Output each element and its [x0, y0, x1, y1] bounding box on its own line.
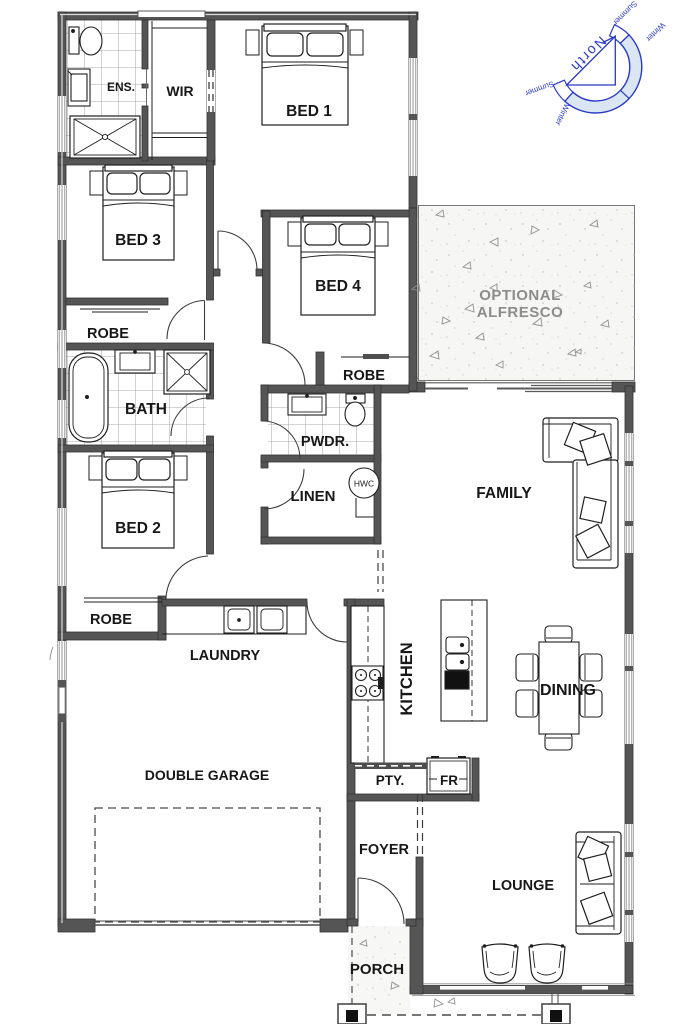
svg-text:BED 2: BED 2 [115, 520, 161, 537]
svg-text:OPTIONAL: OPTIONAL [479, 287, 561, 304]
svg-text:KITCHEN: KITCHEN [398, 642, 416, 715]
svg-text:LINEN: LINEN [291, 488, 336, 505]
svg-text:WIR: WIR [166, 83, 193, 99]
svg-text:FR: FR [440, 773, 458, 788]
svg-text:ROBE: ROBE [343, 368, 385, 384]
svg-text:BED 1: BED 1 [286, 103, 332, 120]
svg-text:HWC: HWC [354, 479, 374, 489]
svg-text:LAUNDRY: LAUNDRY [190, 648, 261, 664]
svg-text:ROBE: ROBE [87, 326, 129, 342]
svg-text:BATH: BATH [125, 401, 167, 418]
svg-text:ROBE: ROBE [90, 612, 132, 628]
svg-text:DOUBLE GARAGE: DOUBLE GARAGE [145, 767, 269, 783]
svg-text:BED 4: BED 4 [315, 278, 361, 295]
svg-text:LOUNGE: LOUNGE [492, 878, 554, 894]
svg-text:FOYER: FOYER [359, 842, 409, 858]
svg-text:FAMILY: FAMILY [476, 485, 532, 502]
svg-text:ENS.: ENS. [107, 80, 135, 94]
svg-text:BED 3: BED 3 [115, 232, 161, 249]
svg-text:PWDR.: PWDR. [301, 434, 349, 450]
svg-text:ALFRESCO: ALFRESCO [477, 304, 564, 321]
svg-text:PORCH: PORCH [350, 961, 404, 978]
svg-text:PTY.: PTY. [376, 773, 405, 788]
svg-text:DINING: DINING [540, 682, 596, 699]
